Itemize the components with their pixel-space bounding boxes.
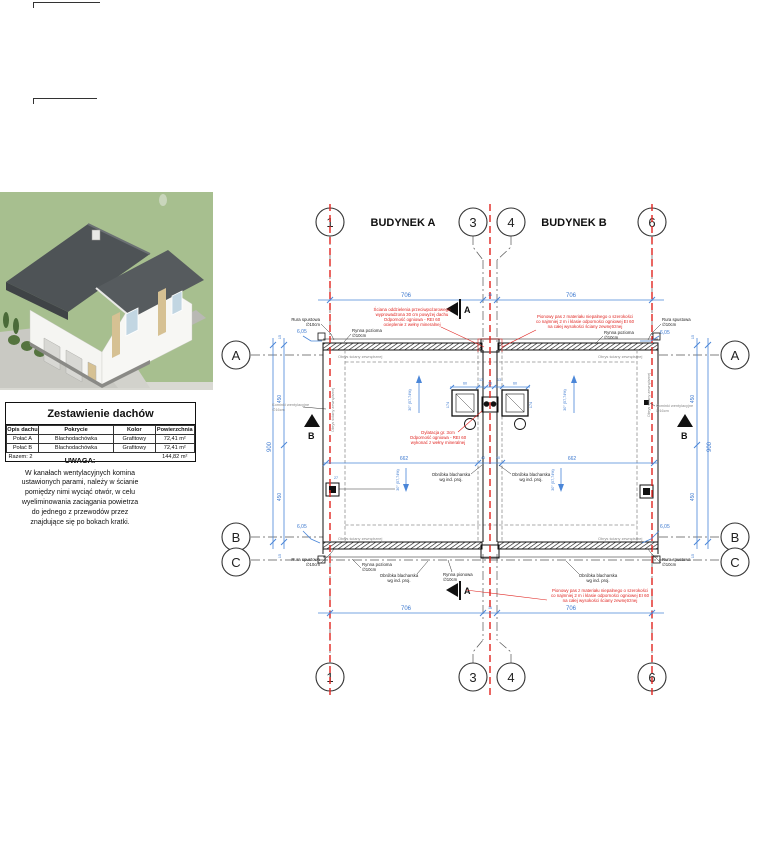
obrys-label: Obrys ściany zewnętrznej <box>646 373 651 417</box>
axis-label: 3 <box>469 670 476 685</box>
section-a-marker-bottom <box>446 583 458 597</box>
section-b-label: B <box>308 431 315 441</box>
dim-edge: 15 <box>691 335 695 339</box>
dim-edge: 15 <box>278 554 282 558</box>
axis-label: 4 <box>507 215 514 230</box>
top-eave-hatch-right <box>498 343 658 350</box>
dim-edge: 15 <box>278 335 282 339</box>
axis-label: B <box>232 530 241 545</box>
axis-label: 4 <box>507 670 514 685</box>
section-b-label: B <box>681 431 688 441</box>
dim-eave-bl: 6,05 <box>297 524 307 530</box>
obrobka-label: wg ind. proj. <box>586 578 609 583</box>
dim-chimney: 26 <box>488 382 492 386</box>
dim-top-gap: 16 <box>488 293 492 297</box>
slope-label: 30° (57,74%) <box>551 469 555 491</box>
rynna-pozioma-label: ∅10cm <box>352 333 367 338</box>
dim-mid-right: 662 <box>568 456 577 462</box>
axis-label: 3 <box>469 215 476 230</box>
dim-mid-small: 40 <box>481 456 485 460</box>
obrys-label: Obrys ściany zewnętrznej <box>598 354 642 359</box>
roof-plan: 1 3 4 6 1 3 4 6 A B C A B C BUDYNEK A BU… <box>0 0 768 857</box>
dim-left-lower: 450 <box>277 493 283 502</box>
section-b-marker-left <box>304 414 320 427</box>
axis-label: C <box>730 555 739 570</box>
rynna-pozioma-label: ∅10cm <box>362 567 377 572</box>
dim-bottom-left: 706 <box>401 606 412 612</box>
kominki-label: ∅16cm <box>656 408 669 413</box>
bottom-eave-hatch-left <box>323 542 482 549</box>
slope-label: 30° (57,74%) <box>396 469 400 491</box>
rura-spustowa-label: ∅10cm <box>662 562 677 567</box>
dim-bottom-gap: 16 <box>488 606 492 610</box>
dim-eave-tl: 6,05 <box>297 329 307 335</box>
dim-left-total: 900 <box>267 441 273 452</box>
axis-label: A <box>731 348 740 363</box>
dim-chimney-v: 174 <box>529 402 533 408</box>
dim-chimney: 13 <box>497 378 501 382</box>
dim-top-right: 706 <box>566 293 577 299</box>
axis-label: A <box>232 348 241 363</box>
bottom-eave-hatch-right <box>498 542 658 549</box>
dim-right-lower: 450 <box>690 493 696 502</box>
section-b-marker-right <box>677 414 693 427</box>
kominki-label: ∅16cm <box>272 407 285 412</box>
dim-edge: 15 <box>691 554 695 558</box>
rura-spustowa-label: ∅10cm <box>306 562 321 567</box>
slope-label: 30° (57,74%) <box>408 389 412 411</box>
top-eave-hatch-left <box>323 343 482 350</box>
obrobka-label: wg ind. proj. <box>387 578 410 583</box>
rura-spustowa-label: ∅10cm <box>662 322 677 327</box>
dim-mid-small: 40 <box>496 456 500 460</box>
dim-right-total: 900 <box>707 441 713 452</box>
dim-chimney: 60 <box>463 382 467 386</box>
obrys-label: Obrys ściany zewnętrznej <box>330 388 335 432</box>
rynna-pionowa-label: ∅10cm <box>443 577 458 582</box>
firewall-note-line: ocieplenie z wełny mineralnej <box>383 322 440 327</box>
obrobka-label: wg ind. proj. <box>519 477 542 482</box>
building-a-title: BUDYNEK A <box>371 217 436 229</box>
dim-eave-tr: 6,05 <box>660 330 670 336</box>
fire-strip-note-line: na całej wysokości ściany zewnętrznej <box>548 324 623 329</box>
dim-vent-offset: 27 <box>334 476 338 480</box>
section-a-label: A <box>464 305 471 315</box>
building-outline <box>318 333 660 563</box>
obrys-label: Obrys ściany zewnętrznej <box>338 354 382 359</box>
rynna-pozioma-label: ∅10cm <box>604 335 619 340</box>
obrobka-label: wg ind. proj. <box>439 477 462 482</box>
vent-duct <box>484 401 490 407</box>
axis-label: C <box>231 555 240 570</box>
section-a-label: A <box>464 586 471 596</box>
dim-eave-br: 6,05 <box>660 524 670 530</box>
obrys-label: Obrys ściany zewnętrznej <box>338 536 382 541</box>
dim-chimney: 60 <box>513 382 517 386</box>
rura-spustowa-label: ∅10cm <box>306 322 321 327</box>
dim-bottom-right: 706 <box>566 606 577 612</box>
obrys-label: Obrys ściany zewnętrznej <box>598 536 642 541</box>
axis-label: B <box>731 530 740 545</box>
dim-right-upper: 450 <box>690 395 696 404</box>
dim-chimney: 13 <box>479 378 483 382</box>
dim-top-left: 706 <box>401 293 412 299</box>
dylatacja-note-line: wykonać z wełny mineralnej <box>411 440 465 445</box>
drawing-sheet: { "roof_table": { "title": "Zestawienie … <box>0 0 768 857</box>
building-b-title: BUDYNEK B <box>541 217 606 229</box>
vent-duct <box>491 401 497 407</box>
slope-label: 30° (57,74%) <box>563 389 567 411</box>
fire-strip-note-line: na całej wysokości ściany zewnętrznej <box>563 598 638 603</box>
dim-mid-left: 662 <box>400 456 409 462</box>
dim-chimney-v: 174 <box>446 402 450 408</box>
